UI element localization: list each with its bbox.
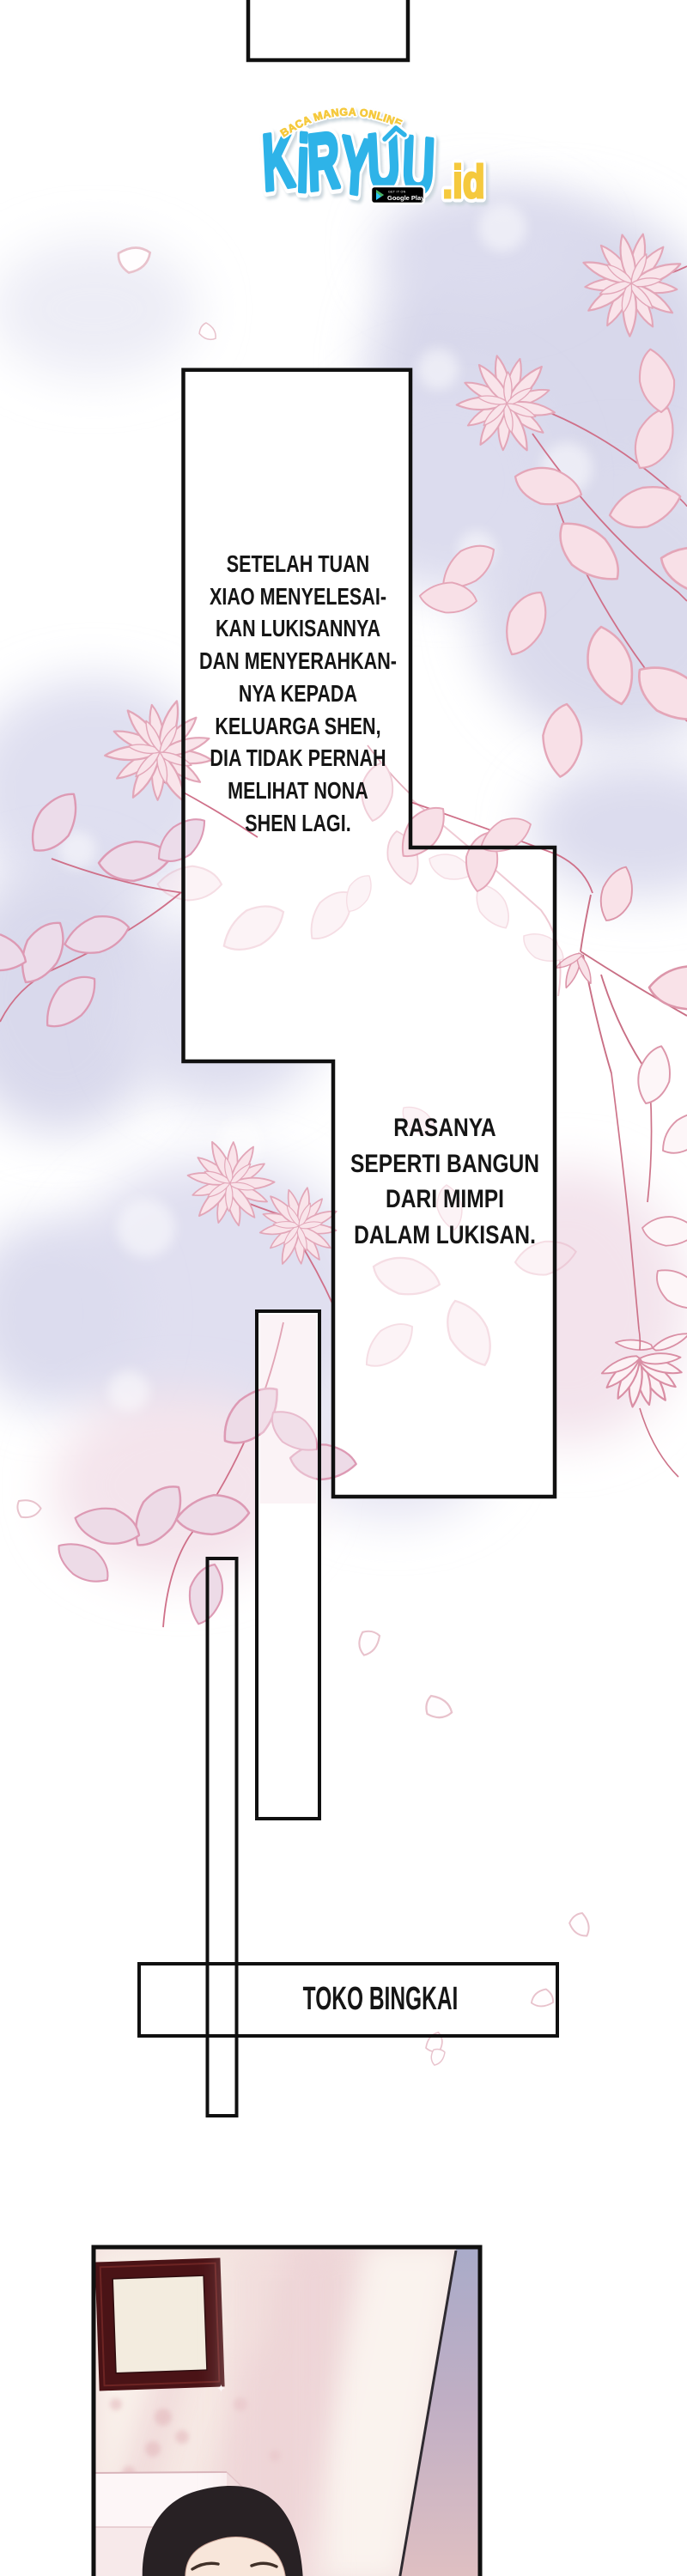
svg-text:Google Play: Google Play xyxy=(387,194,425,202)
svg-text:✦: ✦ xyxy=(216,2382,226,2395)
svg-text:GET IT ON: GET IT ON xyxy=(388,191,406,194)
svg-text:.id: .id xyxy=(442,156,484,208)
